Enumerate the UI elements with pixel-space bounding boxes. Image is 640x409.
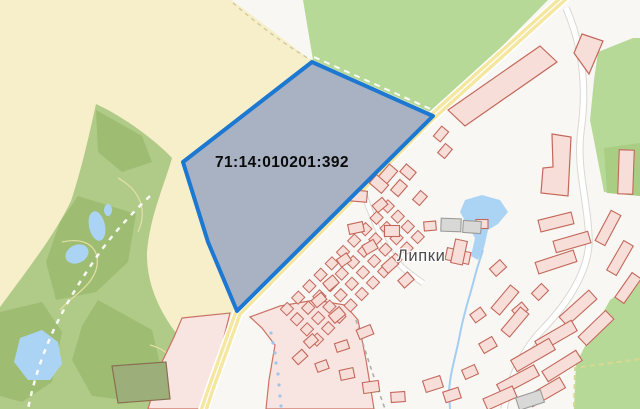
building-gray [516, 390, 545, 409]
building [339, 368, 355, 381]
building [462, 365, 479, 380]
parcel-grid [334, 289, 347, 302]
parcel-grid [314, 268, 327, 281]
building [479, 336, 497, 353]
parcel-grid [348, 234, 361, 247]
parcel-cadastral-label: 71:14:010201:392 [215, 154, 349, 171]
stream-dotted [279, 404, 282, 407]
building [532, 284, 549, 301]
parcel-grid [401, 220, 414, 233]
building [489, 260, 506, 277]
pond [104, 204, 112, 216]
parcel-grid [356, 266, 369, 279]
building [391, 179, 408, 196]
building [424, 221, 437, 231]
stream-dotted [269, 331, 272, 334]
stream-dotted [276, 372, 279, 375]
building [385, 226, 400, 237]
building [618, 150, 635, 194]
map-viewport[interactable]: 71:14:010201:392 Липки [0, 0, 640, 409]
stream-dotted [274, 361, 277, 364]
parcel-grid [325, 257, 338, 270]
building [433, 126, 448, 142]
building [438, 144, 453, 159]
stream-dotted [271, 341, 274, 344]
building [470, 307, 486, 323]
building [595, 210, 621, 245]
parcel-grid [335, 267, 348, 280]
building [362, 380, 379, 393]
stream-dotted [273, 351, 276, 354]
map-layers [0, 0, 640, 409]
parcel-grid [411, 230, 424, 243]
building [423, 376, 444, 393]
building [607, 241, 634, 276]
parcel-grid [391, 210, 404, 223]
parcel-grid [345, 277, 358, 290]
pink-zone-center [250, 300, 374, 409]
stream-dotted [278, 394, 281, 397]
building [391, 392, 406, 403]
building-gray [463, 220, 482, 233]
farm-compound [112, 362, 170, 403]
stream [449, 250, 483, 409]
parcel-grid [368, 254, 381, 267]
building [538, 212, 574, 232]
parcel-grid [366, 276, 379, 289]
building [535, 250, 577, 274]
building [413, 191, 428, 206]
parcel-grid [303, 280, 316, 293]
map-canvas[interactable]: 71:14:010201:392 Липки [0, 0, 640, 409]
building-gray [441, 218, 461, 232]
parcel-grid [355, 287, 368, 300]
village-label: Липки [397, 247, 445, 265]
building [323, 275, 339, 291]
stream-dotted [277, 383, 280, 386]
building-L [541, 134, 571, 196]
building [443, 387, 462, 402]
building [400, 164, 416, 180]
